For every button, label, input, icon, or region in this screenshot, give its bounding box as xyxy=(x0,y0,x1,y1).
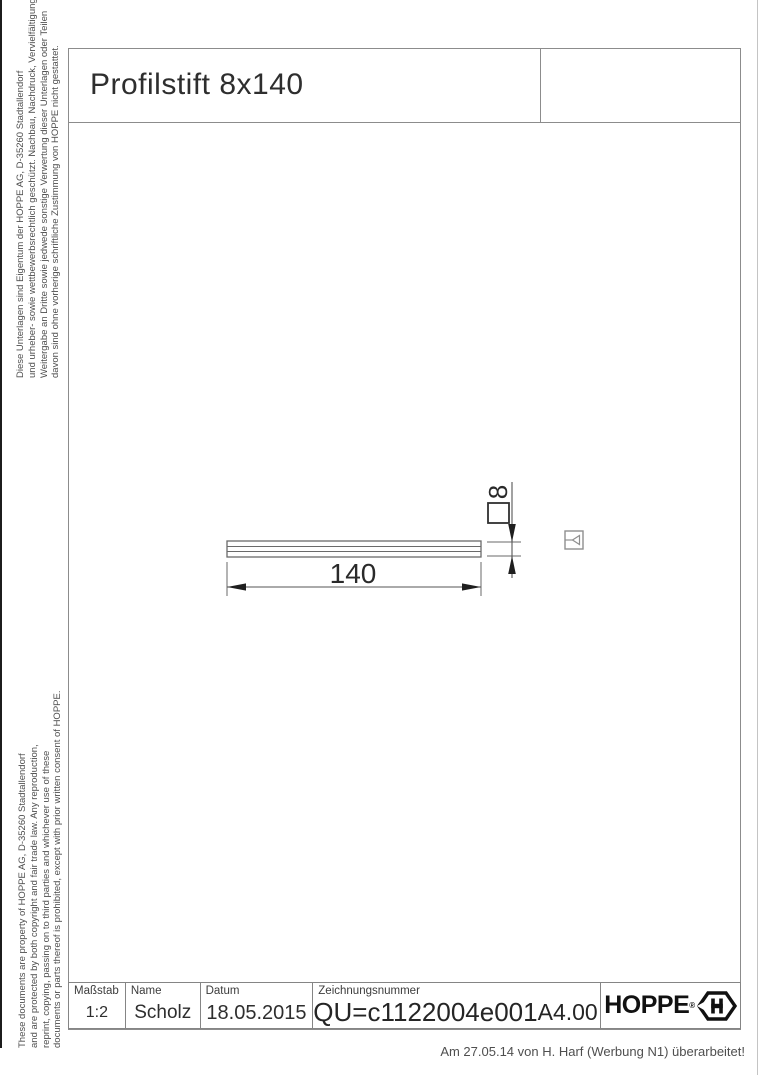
legal-note-english: These documents are property of HOPPE AG… xyxy=(17,715,63,1048)
name-value: Scholz xyxy=(126,998,200,1028)
legal-note-german-line: und urheber- sowie wettbewerbsrechtlich … xyxy=(27,45,39,378)
dim-arrow-left xyxy=(227,583,246,590)
legal-note-german-line: davon sind ohne vorherige schriftliche Z… xyxy=(50,45,62,378)
titleblock-cell-drawing-number: Zeichnungsnummer QU=c1122004e001 A4.00 xyxy=(313,983,601,1028)
scan-right-edge xyxy=(757,0,758,1075)
legal-note-english-line: and are protected by both copyright and … xyxy=(29,715,41,1048)
revision-note: Am 27.05.14 von H. Harf (Werbung N1) übe… xyxy=(440,1044,745,1059)
legal-note-german-line: Weitergabe an Dritte sowie jedwede sonst… xyxy=(39,45,51,378)
hoppe-hexagon-icon xyxy=(697,990,737,1022)
dim-arrow-up xyxy=(508,556,516,574)
date-value: 18.05.2015 xyxy=(201,998,313,1028)
sheet-format-value: A4.00 xyxy=(538,999,605,1026)
legal-note-german: Diese Unterlagen sind Eigentum der HOPPE… xyxy=(15,45,63,378)
dim-arrow-right xyxy=(462,583,481,590)
dim-text-length: 140 xyxy=(330,558,377,589)
dim-arrow-down xyxy=(508,524,516,542)
title-block: Maßstab 1:2 Name Scholz Datum 18.05.2015… xyxy=(68,982,741,1029)
header-box-bottom-line xyxy=(68,122,741,123)
titleblock-cell-name: Name Scholz xyxy=(126,983,201,1028)
dim-text-section: 8 xyxy=(483,485,513,499)
scale-value: 1:2 xyxy=(69,998,125,1028)
titleblock-cell-logo: HOPPE® xyxy=(601,983,740,1028)
pin-technical-drawing: 140 8 xyxy=(200,470,600,605)
date-label: Datum xyxy=(206,985,240,997)
header-box-divider xyxy=(540,49,541,122)
drawing-sheet: Profilstift 8x140 Diese Unterlagen sind … xyxy=(0,0,763,1080)
drawing-number-value: QU=c1122004e001 xyxy=(313,997,537,1028)
titleblock-cell-scale: Maßstab 1:2 xyxy=(69,983,126,1028)
legal-note-english-line: reprint, copying, passing on to third pa… xyxy=(41,715,53,1048)
hoppe-logo-text: HOPPE xyxy=(604,991,689,1020)
registered-trademark-mark: ® xyxy=(689,1001,695,1010)
scan-left-edge xyxy=(0,0,2,1048)
legal-note-german-line: Diese Unterlagen sind Eigentum der HOPPE… xyxy=(15,45,27,378)
square-section-symbol xyxy=(488,503,509,523)
scale-label: Maßstab xyxy=(74,985,119,997)
titleblock-cell-date: Datum 18.05.2015 xyxy=(201,983,314,1028)
legal-note-english-line: These documents are property of HOPPE AG… xyxy=(17,715,29,1048)
page-title: Profilstift 8x140 xyxy=(90,68,304,102)
pin-side-view xyxy=(227,541,481,557)
hoppe-logo: HOPPE® xyxy=(601,983,740,1028)
legal-note-english-line: documents or parts thereof is prohibited… xyxy=(52,715,64,1048)
name-label: Name xyxy=(131,985,162,997)
